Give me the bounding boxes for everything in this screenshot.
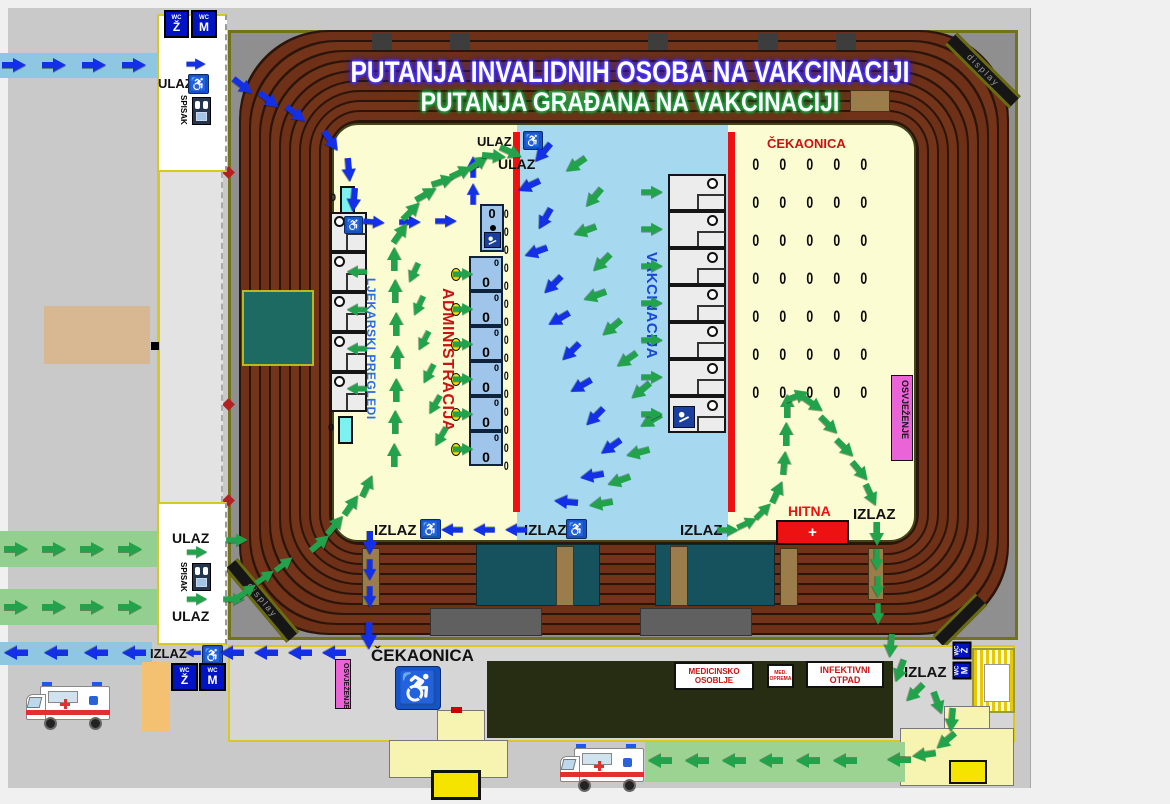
flow-arrow-blue	[361, 622, 377, 650]
flow-arrow-green	[453, 373, 473, 385]
flow-arrow-blue	[473, 524, 495, 537]
flow-arrow-blue	[540, 272, 567, 299]
flow-arrow-blue	[505, 524, 527, 537]
flow-arrow-green	[648, 754, 672, 768]
flow-arrow-blue	[364, 559, 377, 581]
flow-arrow-blue	[220, 646, 244, 660]
flow-arrow-blue	[229, 73, 257, 99]
flow-arrow-green	[776, 450, 792, 475]
flow-arrow-green	[409, 294, 430, 319]
flow-arrow-green	[4, 542, 28, 556]
flow-arrow-green	[187, 546, 207, 558]
flow-arrow-green	[641, 297, 663, 310]
flow-arrow-green	[872, 603, 885, 625]
flow-arrow-blue	[254, 646, 278, 660]
flow-arrow-blue	[363, 531, 377, 555]
flow-arrow-green	[226, 534, 248, 547]
flow-arrow-green	[860, 481, 883, 509]
flow-arrow-green	[796, 754, 820, 768]
flow-arrow-blue	[567, 374, 595, 398]
flow-arrow-green	[562, 152, 590, 177]
flow-arrow-green	[42, 542, 66, 556]
flow-arrow-green	[387, 247, 401, 271]
flow-arrow-green	[347, 383, 367, 395]
flow-arrow-blue	[533, 205, 557, 233]
flow-arrow-blue	[441, 524, 463, 537]
flow-arrow-green	[347, 266, 367, 278]
flow-arrow-blue	[597, 434, 625, 459]
flow-arrow-blue	[467, 183, 480, 205]
flow-arrow-green	[589, 250, 616, 277]
flow-arrow-green	[887, 753, 911, 767]
flow-arrow-green	[453, 303, 473, 315]
flow-arrow-blue	[282, 101, 310, 127]
flow-arrows-layer	[0, 0, 1170, 804]
flow-arrow-green	[685, 754, 709, 768]
flow-arrow-green	[872, 576, 885, 598]
flow-arrow-green	[889, 657, 910, 684]
flow-arrow-green	[625, 443, 652, 463]
flow-arrow-green	[779, 422, 793, 446]
flow-arrow-blue	[515, 175, 543, 198]
flow-arrow-green	[759, 754, 783, 768]
flow-arrow-green	[871, 549, 884, 571]
flow-arrow-green	[430, 424, 452, 449]
flow-arrow-green	[347, 343, 367, 355]
flow-arrow-green	[118, 600, 142, 614]
flow-arrow-green	[641, 371, 663, 384]
flow-arrow-green	[641, 334, 663, 347]
flow-arrow-blue	[122, 646, 146, 660]
flow-arrow-blue	[322, 646, 346, 660]
flow-arrow-green	[404, 261, 425, 286]
flow-arrow-blue	[545, 307, 573, 331]
flow-arrow-blue	[318, 127, 343, 155]
flow-arrow-green	[832, 435, 859, 462]
flow-arrow-green	[870, 522, 884, 546]
flow-arrow-green	[80, 600, 104, 614]
flow-arrow-green	[356, 472, 379, 500]
flow-arrow-green	[833, 754, 857, 768]
flow-arrow-green	[581, 184, 607, 211]
flow-arrow-green	[605, 470, 632, 491]
flow-arrow-green	[588, 495, 614, 513]
flow-arrow-blue	[185, 648, 201, 657]
flow-arrow-green	[902, 680, 929, 707]
flow-arrow-green	[424, 392, 446, 417]
flow-arrow-green	[613, 347, 641, 372]
flow-arrow-green	[598, 315, 625, 341]
flow-arrow-green	[453, 268, 473, 280]
flow-arrow-green	[118, 542, 142, 556]
flow-arrow-green	[453, 443, 473, 455]
flow-arrow-green	[816, 412, 843, 439]
flow-arrow-green	[4, 600, 28, 614]
flow-arrow-blue	[186, 58, 205, 69]
flow-arrow-green	[641, 260, 663, 273]
flow-arrow-blue	[44, 646, 68, 660]
flow-arrow-blue	[522, 241, 549, 262]
flow-arrow-green	[766, 478, 789, 506]
flow-arrow-blue	[558, 339, 585, 366]
flow-arrow-blue	[255, 87, 283, 113]
flow-arrow-blue	[288, 646, 312, 660]
flow-arrow-blue	[553, 494, 578, 510]
flow-arrow-green	[413, 329, 434, 354]
flow-arrow-green	[187, 593, 207, 605]
vaccination-center-floor-plan: display display PUTANJA INVALIDNIH OSOBA…	[0, 0, 1170, 804]
flow-arrow-blue	[2, 58, 26, 72]
flow-arrow-green	[641, 223, 663, 236]
flow-arrow-green	[347, 304, 367, 316]
flow-arrow-green	[453, 338, 473, 350]
flow-arrow-green	[883, 633, 899, 658]
flow-arrow-blue	[363, 215, 386, 229]
flow-arrow-green	[641, 186, 663, 199]
flow-arrow-green	[80, 542, 104, 556]
flow-arrow-blue	[42, 58, 66, 72]
flow-arrow-blue	[4, 646, 28, 660]
flow-arrow-green	[418, 362, 439, 387]
flow-arrow-blue	[530, 139, 556, 166]
flow-arrow-blue	[346, 187, 362, 212]
flow-arrow-blue	[122, 58, 146, 72]
flow-arrow-green	[911, 746, 937, 763]
flow-arrow-green	[390, 345, 404, 369]
flow-arrow-blue	[364, 586, 377, 608]
flow-arrow-blue	[341, 157, 357, 182]
flow-arrow-green	[389, 378, 403, 402]
flow-arrow-blue	[82, 58, 106, 72]
flow-arrow-blue	[582, 404, 609, 431]
flow-arrow-green	[847, 457, 873, 484]
flow-arrow-green	[387, 443, 401, 467]
flow-arrow-green	[388, 279, 402, 303]
flow-arrow-green	[571, 220, 598, 241]
flow-arrow-green	[453, 408, 473, 420]
flow-arrow-green	[722, 754, 746, 768]
flow-arrow-green	[42, 600, 66, 614]
flow-arrow-blue	[435, 215, 457, 228]
flow-arrow-blue	[579, 467, 605, 485]
flow-arrow-green	[388, 410, 402, 434]
flow-arrow-green	[581, 285, 608, 306]
flow-arrow-blue	[84, 646, 108, 660]
flow-arrow-green	[389, 312, 403, 336]
flow-arrow-green	[641, 408, 663, 421]
